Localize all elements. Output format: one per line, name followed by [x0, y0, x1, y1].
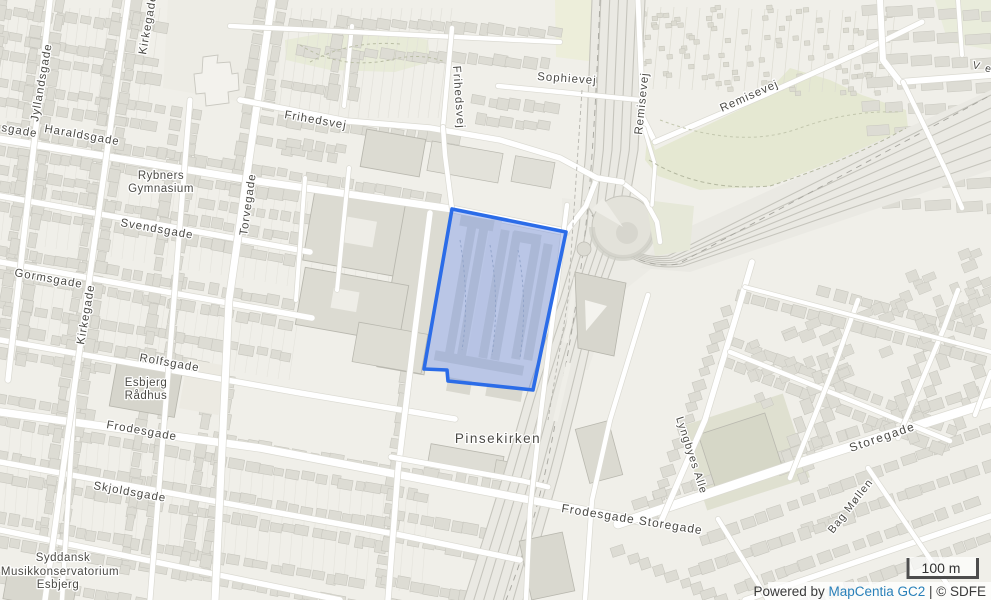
svg-text:Syddansk: Syddansk [36, 552, 91, 564]
svg-text:Musikkonservatorium: Musikkonservatorium [1, 566, 119, 578]
svg-text:Esbjerg: Esbjerg [125, 377, 168, 389]
svg-text:100 m: 100 m [922, 560, 961, 576]
svg-text:Rådhus: Rådhus [125, 390, 168, 402]
svg-text:Gymnasium: Gymnasium [128, 183, 194, 195]
svg-text:Powered by MapCentia GC2 | © S: Powered by MapCentia GC2 | © SDFE [753, 584, 986, 599]
svg-text:Rybners: Rybners [138, 170, 184, 182]
svg-text:Pinsekirken: Pinsekirken [455, 431, 541, 446]
svg-text:Esbjerg: Esbjerg [37, 579, 80, 591]
